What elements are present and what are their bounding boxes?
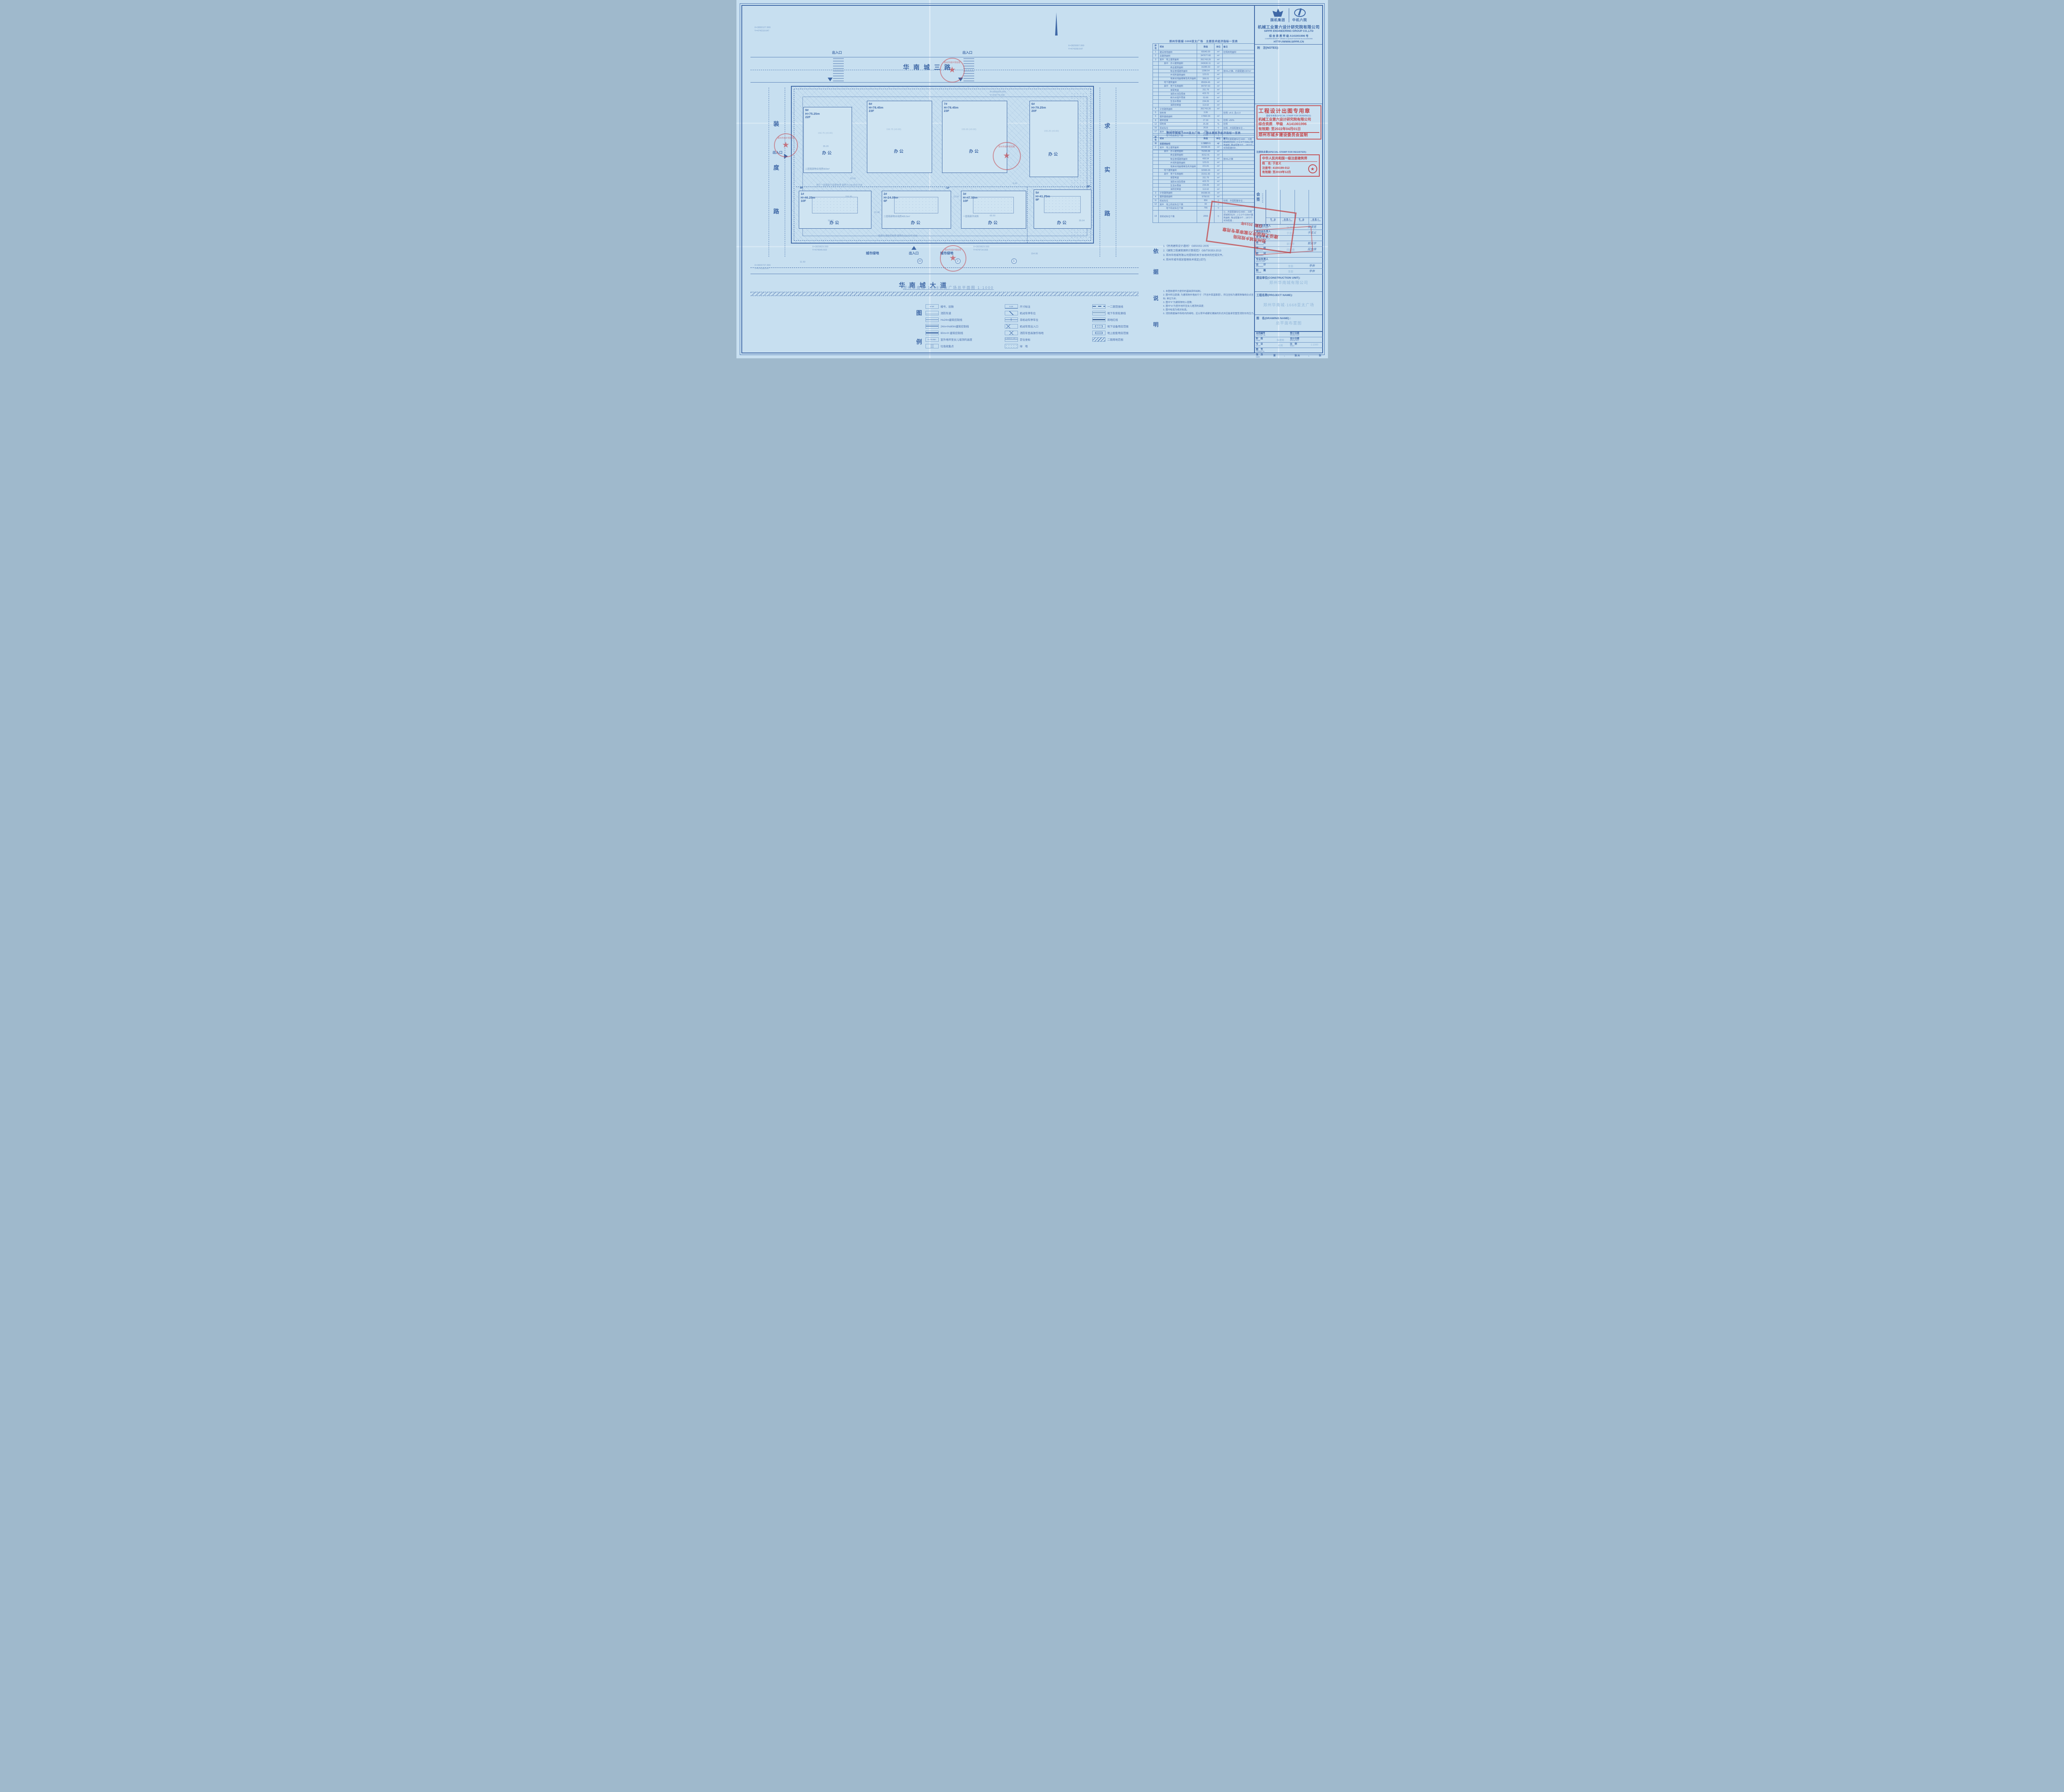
table-row: 地下建筑面积 32995.00 m² <box>1153 168 1254 172</box>
qualification-en: COMPREHENSIVE GRADE A QUALIFICATION No.A… <box>1255 38 1323 40</box>
legend-symbol-icon <box>1005 324 1018 329</box>
table-title: 郑州华南城·1668亚太广场 主要技术经济指标一览表 <box>1153 39 1255 43</box>
legend-symbol-icon: H=79.95m <box>925 337 939 342</box>
register-stamp-label: 注册执业章(SPECIAL STAMP FOR REGISTER): <box>1257 150 1307 154</box>
dim-label: 22.40 <box>874 211 880 214</box>
legend-symbol-icon <box>925 324 939 329</box>
legend-symbol-icon <box>1005 344 1018 348</box>
building-label: 8#H=78.45m23F <box>869 102 883 113</box>
table-row: 开闭所建筑面积 123.01 m² <box>1153 73 1254 77</box>
firm-url: HTTP://WWW.SIPPR.CN <box>1255 40 1323 43</box>
legend-item: 机动车库出入口 <box>1005 323 1075 329</box>
legend-item: 绿 地 <box>1005 343 1075 349</box>
building-label: 6#H=79.25m20F <box>1032 102 1046 113</box>
legend-symbol-icon <box>925 317 939 322</box>
legend-item: 9.19 尺寸标注 <box>1005 303 1075 310</box>
coord-callout: X=3829737.999 <box>755 264 771 267</box>
table-row: 生活水泵房 234.06 m² <box>1153 184 1254 187</box>
road-name-left-char: 度 <box>774 163 779 172</box>
index-row: 张 次INDEX 第 1 张 共 1 张 <box>1255 353 1323 358</box>
building-label: 2#H=24.05m6F <box>884 192 898 203</box>
desc-note-item: 3. 图中“F”为建筑物地上层数; <box>1163 301 1257 305</box>
coord-callout: Y=474775.002 <box>990 94 1005 97</box>
dim-label: 65.50 <box>990 215 996 217</box>
table-row: 11 机动车位 856 个 控规…共需配建车位… <box>1153 199 1254 203</box>
legend-symbol-icon <box>1092 317 1105 322</box>
building-label: 5#H=41.75m9F <box>1036 191 1050 202</box>
table-row: 雨污水提升泵房 53.66 m² <box>1153 96 1254 99</box>
legend-item: H=79.95m 室外地坪至女儿墙顶的高度 <box>925 336 996 343</box>
firm-name-en: SIPPR ENGINEERING GROUP CO.,LTD <box>1255 30 1323 33</box>
legend-item: 二期用地范围 <box>1092 336 1162 343</box>
coord-callout: X=3829997.999 <box>1068 45 1084 47</box>
table-row: 3 其中 地上建筑面积 261743.20 m² <box>1153 58 1254 62</box>
building-level: 155.25 (±0.00) <box>1044 130 1059 133</box>
star-icon: ★ <box>994 152 1020 160</box>
building-9: 9#H=75.25m22F 156.75 (±0.00) 办公 二层局部物业用房… <box>803 107 852 173</box>
sinomach-logo-icon <box>1273 9 1283 17</box>
basis-note-item: 4. 郑州市城市规划管理技术规定(试行) <box>1163 258 1257 263</box>
desc-note-item: 6. 消防救援操作场地内的绿地，应以草坪或硬化铺装的形式并应能承受重型消防车的压… <box>1163 312 1257 316</box>
table-row: 其中 地下车库面积 31911.83 m² <box>1153 172 1254 176</box>
contract-row: 合同编号CONTRACT No. 签订日期SIGNING DATE <box>1255 332 1323 337</box>
table-row: 1 建设用地面积 65540.00 m² 控规用地面积 <box>1153 50 1254 54</box>
stamp-sublabel: 图纸专用章(SPECIAL STAMP FOR DRAWINGS): <box>1259 114 1319 117</box>
plan-caption: 郑州华南城·1668亚太广场总平面图 1:1000 <box>878 285 1019 290</box>
star-icon: ★ <box>941 254 966 263</box>
building-level: 155.65 (±0.00) <box>961 128 976 131</box>
desc-note-item: 5. 图中标高为绝对标高。 <box>1163 308 1257 312</box>
stamp-title: 工程设计出图专用章 <box>1259 107 1319 114</box>
crosswalk <box>833 58 844 81</box>
coord-callout: Y=474358.647 <box>1068 48 1083 50</box>
building-use: 办公 <box>882 219 951 225</box>
dim-label: 154.95 <box>1031 253 1038 255</box>
coord-callout: X=3829829.599 <box>973 246 989 248</box>
legend-item: H≤24m建筑控制线 <box>925 316 996 323</box>
desc-note-item: 4. 图中“H”为室外地坪至女儿墙顶的高度; <box>1163 305 1257 308</box>
table-title: 郑州华南城·1668亚太广场 一期主要技术经济指标一览表 <box>1153 130 1255 135</box>
construction-unit-field: 建设单位(CONSTRUCTION UNIT): 郑州华南城有限公司 <box>1255 275 1323 292</box>
legend-item: 消防车登高操作场地 <box>1005 329 1075 336</box>
sinomach-logo: 国机集团 <box>1271 9 1285 22</box>
building-use: 办公 <box>799 219 871 225</box>
planning-bureau-round-stamp: 郑州市城乡规划局★ <box>940 58 965 83</box>
basis-label-char: 依 <box>1153 247 1159 255</box>
table-header-row: 序号 项目 数值 单位 备注 <box>1153 135 1254 142</box>
table-row: 1 总建筑面积 117283.65 m² <box>1153 142 1254 146</box>
table-row: 8 建筑密度 27.30 % 控规: ≤50% <box>1153 118 1254 122</box>
table-row: 商业建筑面积 8152.41 m² <box>1153 153 1254 157</box>
table-row: 消防水池及泵房 423.70 m² <box>1153 180 1254 184</box>
legend-symbol-icon <box>1092 337 1105 342</box>
signature-row: 制 图DRAWN 李奔 李奔 <box>1255 269 1323 274</box>
table-row: 地库出地面楼梯及风井面积 306.01 m² <box>1153 77 1254 80</box>
basis-label-char: 据 <box>1153 267 1159 275</box>
firm-name-cn: 机械工业第六设计研究院有限公司 <box>1255 24 1323 30</box>
building-label: 1#H=46.25m10F <box>801 192 815 203</box>
star-icon: ★ <box>941 66 964 74</box>
building-label: 3#H=47.50m10F <box>963 192 978 203</box>
building-level: 156.75 (±0.00) <box>818 132 833 135</box>
table-row: 消防水池及泵房 423.70 m² <box>1153 92 1254 96</box>
table-row: 物业管理建筑面积 495.54 m² 按4‰计算 <box>1153 157 1254 161</box>
legend-symbol-icon <box>1005 331 1018 335</box>
building-label: 9#H=75.25m22F <box>805 109 820 119</box>
dim-label: 59.10 <box>828 220 834 222</box>
entrance-arrow-icon <box>911 246 916 250</box>
building-note: 二层局部物业用房903m² <box>805 168 851 171</box>
legend-symbol-icon: 9.19 <box>1005 304 1018 309</box>
table-row: 6 建筑基底面积 17892.03 m² <box>1153 115 1254 118</box>
table-row: 4 建筑基底面积 9758.91 m² <box>1153 195 1254 199</box>
dim-label: 53.00 <box>850 178 856 180</box>
road-name-right-char: 求 <box>1105 122 1110 130</box>
coord-callout: X=3829829.599 <box>812 246 828 248</box>
building-use: 办公 <box>1030 151 1078 157</box>
crosswalk <box>963 58 974 81</box>
table-row: 5 容积率 3.99 控规: ≤4.0, 且≥1.0 <box>1153 111 1254 115</box>
table-row: 开闭所建筑面积 123.01 m² <box>1153 161 1254 165</box>
legend-symbol-icon: X=3830121.499 Y=474405.755 <box>1005 337 1018 342</box>
legend-item: 垃圾收集点 <box>925 343 996 349</box>
legend-item: 用地红线 <box>1092 316 1162 323</box>
table-row: 16 机动车位 2616 个 控规…共需配建车位… <box>1153 126 1254 130</box>
road-left <box>769 88 785 257</box>
legend-symbol-icon <box>1005 317 1018 322</box>
building-note: 地下一层局部为变配电室 面积为148.85平方米 <box>817 183 863 187</box>
table-row: 商业建筑面积 16285.53 m² <box>1153 65 1254 69</box>
project-name-field: 工程名称(PROJECT NAME): 郑州华南城·1668亚太广场 <box>1255 292 1323 315</box>
table-row: 3 计容建筑面积 84288.65 m² <box>1153 191 1254 195</box>
legend-symbol-icon <box>1005 311 1018 315</box>
table-row: 变配电室 311.79 m² <box>1153 88 1254 92</box>
legend-symbol-icon <box>925 344 939 348</box>
legend-symbol-icon: 1# 6F <box>925 304 939 309</box>
dim-label: 35.20 <box>823 145 829 148</box>
qualification-cn: 综 合 资 质 甲 级 A141001996 号 <box>1255 33 1323 38</box>
legend: 图 例 1# 6F 楼号、层数 消防车道 H≤24m建筑控制线 <box>916 303 1164 353</box>
sippr-logo: 中机六院 <box>1292 9 1307 22</box>
table-row: 其中 办公建筑面积 243630.11 m² <box>1153 62 1254 65</box>
star-icon: ★ <box>775 141 797 149</box>
legend-item: 非机动车停车位 <box>1005 316 1075 323</box>
table-row: 消防控制室 113.62 m² <box>1153 187 1254 191</box>
building-use: 办公 <box>804 149 852 156</box>
legend-symbol-icon <box>925 331 939 335</box>
title-block: 国机集团 中机六院 机械工业第六设计研究院有限公司 SIPPR ENGINEER… <box>1254 5 1323 353</box>
table-header-row: 序号 项目 数值 单位 备注 <box>1153 44 1254 50</box>
legend-item: 地下设备用房范围 <box>1092 323 1162 329</box>
table-row: 变配电室 311.79 m² <box>1153 176 1254 180</box>
table-row: 2 总建筑面积 347677.66 m² <box>1153 54 1254 58</box>
building-sub-floors: -1F <box>945 187 950 189</box>
float-note: 局部为消防控制室 面积为113.62平方米 <box>878 234 918 237</box>
building-use: 办公 <box>961 219 1026 225</box>
dim-label: 6.00 <box>1013 182 1018 185</box>
registered-architect-stamp: 中华人民共和国一级注册建筑师 姓 名: 于忠义 注册号: 4100199-012… <box>1260 154 1320 177</box>
building-note: 二层局部物业用房495.5m² <box>884 215 950 218</box>
legend-label-char: 例 <box>916 338 922 346</box>
legend-symbol-icon <box>1092 311 1105 315</box>
basis-notes: 依 据 1.《民用建筑设计通则》 GB50352-20052.《建筑工程建筑面积… <box>1153 244 1257 262</box>
entrance-label: 出入口 <box>909 251 919 256</box>
table-row: 物业管理建筑面积 1398.54 m² 按4‰计算，约需配建1397m² <box>1153 69 1254 73</box>
entrance-label: 出入口 <box>963 50 973 55</box>
legend-symbol-icon <box>925 311 939 315</box>
table-row: 4 计容建筑面积 261743.20 m² <box>1153 107 1254 111</box>
basis-note-item: 3. 郑州华南城有限公司提供的关于本地块的控规文件。 <box>1163 253 1257 258</box>
phase-line-horizontal <box>796 187 1091 187</box>
table-row: 12 绿地率 25.08 % 控规 <box>1153 122 1254 126</box>
desc-note-item: 1. 本图依据甲方提供的基础资料绘制。 <box>1163 290 1257 294</box>
dim-label: 35.04 <box>1079 220 1085 222</box>
north-arrow-icon <box>1055 12 1058 36</box>
table-row: 其中 地下车库面积 84797.63 m² <box>1153 84 1254 88</box>
site-plan: 华南城三路 华南城大道 装 度 路 求 实 路 出入口 出入口 出入口 出入口 … <box>742 5 1155 353</box>
desc-note-item: 2. 图中所注距离: 为建筑物外墙皮尺寸（不含外保温厚度），所注坐标为建筑物轴线… <box>1163 294 1257 301</box>
legend-item: 60m<H 建筑控制线 <box>925 329 996 336</box>
road-name-left-char: 路 <box>774 207 779 215</box>
planning-bureau-round-stamp: 郑州市城乡规划局★ <box>774 133 798 157</box>
entrance-arrow-icon <box>828 78 833 81</box>
desc-label-char: 说 <box>1153 294 1159 302</box>
firm-section: 国机集团 中机六院 机械工业第六设计研究院有限公司 SIPPR ENGINEER… <box>1255 5 1323 45</box>
building-level: 156.75 (±0.00) <box>886 128 901 131</box>
green-area-label: 城市绿地 <box>866 251 879 256</box>
blueprint-sheet: 华南城三路 华南城大道 装 度 路 求 实 路 出入口 出入口 出入口 出入口 … <box>736 0 1328 358</box>
planning-bureau-round-stamp: 郑州市城乡规划局★ <box>940 245 966 272</box>
table-row: 其中 办公建筑面积 76295.88 m² <box>1153 149 1254 153</box>
building-sub-floors: 8F <box>1086 185 1090 188</box>
legend-symbol-icon <box>1092 324 1105 329</box>
coord-callout: Y=474188.647 <box>755 267 769 270</box>
legend-item: 24m<H≤60m建筑控制线 <box>925 323 996 329</box>
table-row: 消防控制室 113.62 m² <box>1153 103 1254 107</box>
coord-callout: Y=474714.003 <box>973 249 988 251</box>
coord-callout: X=3830127.999 <box>755 26 771 29</box>
building-sub-floors: 9F <box>800 187 803 189</box>
building-use: 办公 <box>867 148 932 154</box>
road-name-left-char: 装 <box>774 120 779 128</box>
notes-section: 附 注(NOTES): <box>1255 45 1323 104</box>
dim-label: 21.50 <box>954 196 959 198</box>
planning-bureau-round-stamp: 郑州市城乡规划局★ <box>993 142 1021 170</box>
architect-seal-icon: ★ <box>1308 164 1317 173</box>
axis-bubble: 1 <box>1011 258 1017 264</box>
legend-item: X=3830121.499 Y=474405.755 定位坐标 <box>1005 336 1075 343</box>
basis-note-item: 2.《建筑工程建筑面积计算规范》 GB/T50353-2013 <box>1163 249 1257 253</box>
entrance-label: 出入口 <box>832 50 842 55</box>
legend-item: 地上配套用房范围 <box>1092 329 1162 336</box>
building-label: 7#H=78.45m23F <box>944 102 959 113</box>
drawing-name-field: 图 名(DRAWING NAME) : 总平面布置图 <box>1255 315 1323 331</box>
legend-item: 地下车库轮廓线 <box>1092 310 1162 316</box>
drawing-no-row: 图 号DRAWING No. <box>1255 348 1323 353</box>
table-row: 地下建筑面积 85934.46 m² <box>1153 80 1254 84</box>
drawing-info-table: 合同编号CONTRACT No. 签订日期SIGNING DATE 阶 段PHA… <box>1255 331 1323 353</box>
building-8: 8#H=78.45m23F 156.75 (±0.00) 办公 <box>867 101 932 173</box>
major-scale-row: 专 业MAJOR 总图 比 例SCALE 1:1000 <box>1255 343 1323 348</box>
drawing-release-stamp: 工程设计出图专用章 图纸专用章(SPECIAL STAMP FOR DRAWIN… <box>1257 105 1321 140</box>
logo-divider <box>1289 8 1289 22</box>
phase-line-vertical <box>1027 187 1027 243</box>
legend-item: 一二期范围线 <box>1092 303 1162 310</box>
table-row: 地库出地面楼梯及风井面积 221.81 m² <box>1153 165 1254 168</box>
table-row: 2 其中 地上建筑面积 84288.65 m² <box>1153 146 1254 149</box>
legend-item: 机动车停车位 <box>1005 310 1075 316</box>
legend-label-char: 图 <box>916 309 922 317</box>
level-callout: 156.95 <box>845 196 852 198</box>
building-5: 8F 5#H=41.75m9F 办公 <box>1034 189 1091 229</box>
legend-symbol-icon <box>1092 304 1105 309</box>
signature-row: 设 计DESIGNED 李奔 李奔 <box>1255 263 1323 269</box>
building-3: 3#H=47.50m10F 一层局部开闭所 办公 <box>961 191 1026 229</box>
building-1: 9F 1#H=46.25m10F 办公 <box>799 191 871 229</box>
description-notes: 说 明 1. 本图依据甲方提供的基础资料绘制。2. 图中所注距离: 为建筑物外墙… <box>1153 290 1257 316</box>
road-name-right-char: 路 <box>1105 209 1110 218</box>
legend-symbol-icon <box>1092 331 1105 335</box>
coord-callout: Y=474319.647 <box>755 30 769 32</box>
building-2: -1F 2#H=24.05m6F 二层局部物业用房495.5m² 办公 <box>882 191 951 229</box>
axis-bubble: 10 <box>917 258 923 264</box>
legend-item: 消防车道 <box>925 310 996 316</box>
coord-callout: X=3829929.999 <box>990 91 1006 93</box>
phase-row: 阶 段PHASE 报建图 设计日期DESIGN DATE <box>1255 337 1323 343</box>
sippr-logo-icon <box>1294 9 1306 17</box>
notes-label: 附 注(NOTES): <box>1255 45 1323 51</box>
building-6: 6#H=79.25m20F 155.25 (±0.00) 办公 <box>1030 101 1078 177</box>
signature-row: 专业负责人MAJOR CHIEF <box>1255 258 1323 263</box>
coord-callout: Y=474545.502 <box>812 249 827 251</box>
road-name-right-char: 实 <box>1105 166 1110 174</box>
legend-item: 1# 6F 楼号、层数 <box>925 303 996 310</box>
table-row: 生活水泵房 234.06 m² <box>1153 99 1254 103</box>
dim-label: 11.50 <box>800 261 805 263</box>
